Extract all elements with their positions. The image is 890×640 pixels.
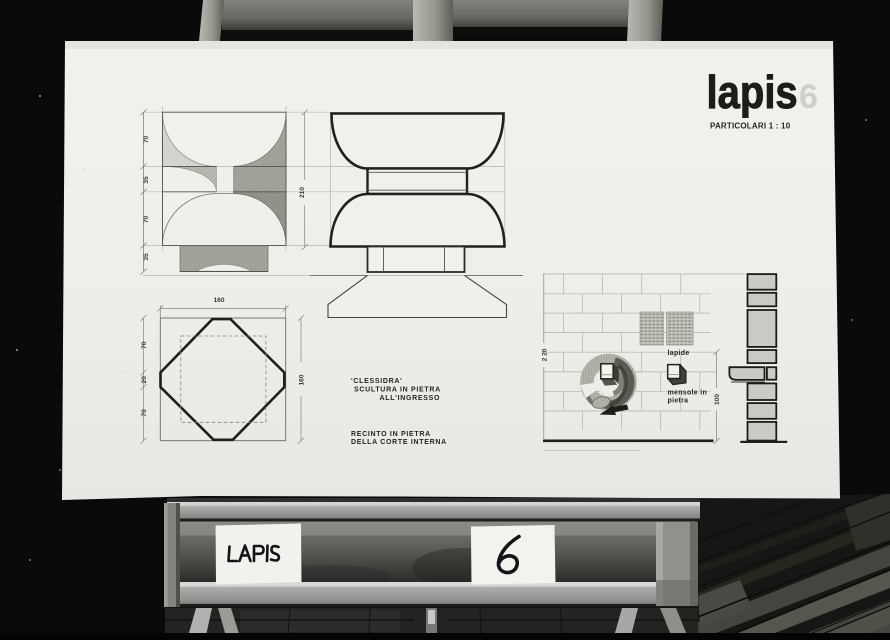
svg-text:35: 35 xyxy=(143,253,150,261)
svg-text:2 20: 2 20 xyxy=(542,348,549,361)
svg-text:70: 70 xyxy=(143,136,150,144)
svg-text:70: 70 xyxy=(141,409,148,417)
svg-text:RECINTO IN PIETRA: RECINTO IN PIETRA xyxy=(351,431,431,438)
svg-text:70: 70 xyxy=(143,216,150,224)
svg-text:100: 100 xyxy=(714,394,721,405)
svg-text:pietra: pietra xyxy=(668,398,689,405)
svg-text:160: 160 xyxy=(213,297,224,304)
svg-text:ALL'INGRESSO: ALL'INGRESSO xyxy=(380,395,441,402)
svg-text:lapis: lapis xyxy=(707,67,798,118)
svg-text:210: 210 xyxy=(299,187,306,198)
svg-text:mensole in: mensole in xyxy=(668,390,708,397)
svg-text:20: 20 xyxy=(141,376,148,384)
svg-text:'CLESSIDRA': 'CLESSIDRA' xyxy=(351,378,402,385)
svg-text:70: 70 xyxy=(141,341,148,349)
svg-text:DELLA CORTE INTERNA: DELLA CORTE INTERNA xyxy=(351,439,447,446)
svg-text:6: 6 xyxy=(799,78,818,116)
svg-text:35: 35 xyxy=(143,176,150,184)
svg-text:SCULTURA IN PIETRA: SCULTURA IN PIETRA xyxy=(354,387,441,394)
svg-text:PARTICOLARI 1 : 10: PARTICOLARI 1 : 10 xyxy=(710,122,791,131)
svg-text:160: 160 xyxy=(299,374,306,385)
svg-text:lapide: lapide xyxy=(668,350,690,357)
